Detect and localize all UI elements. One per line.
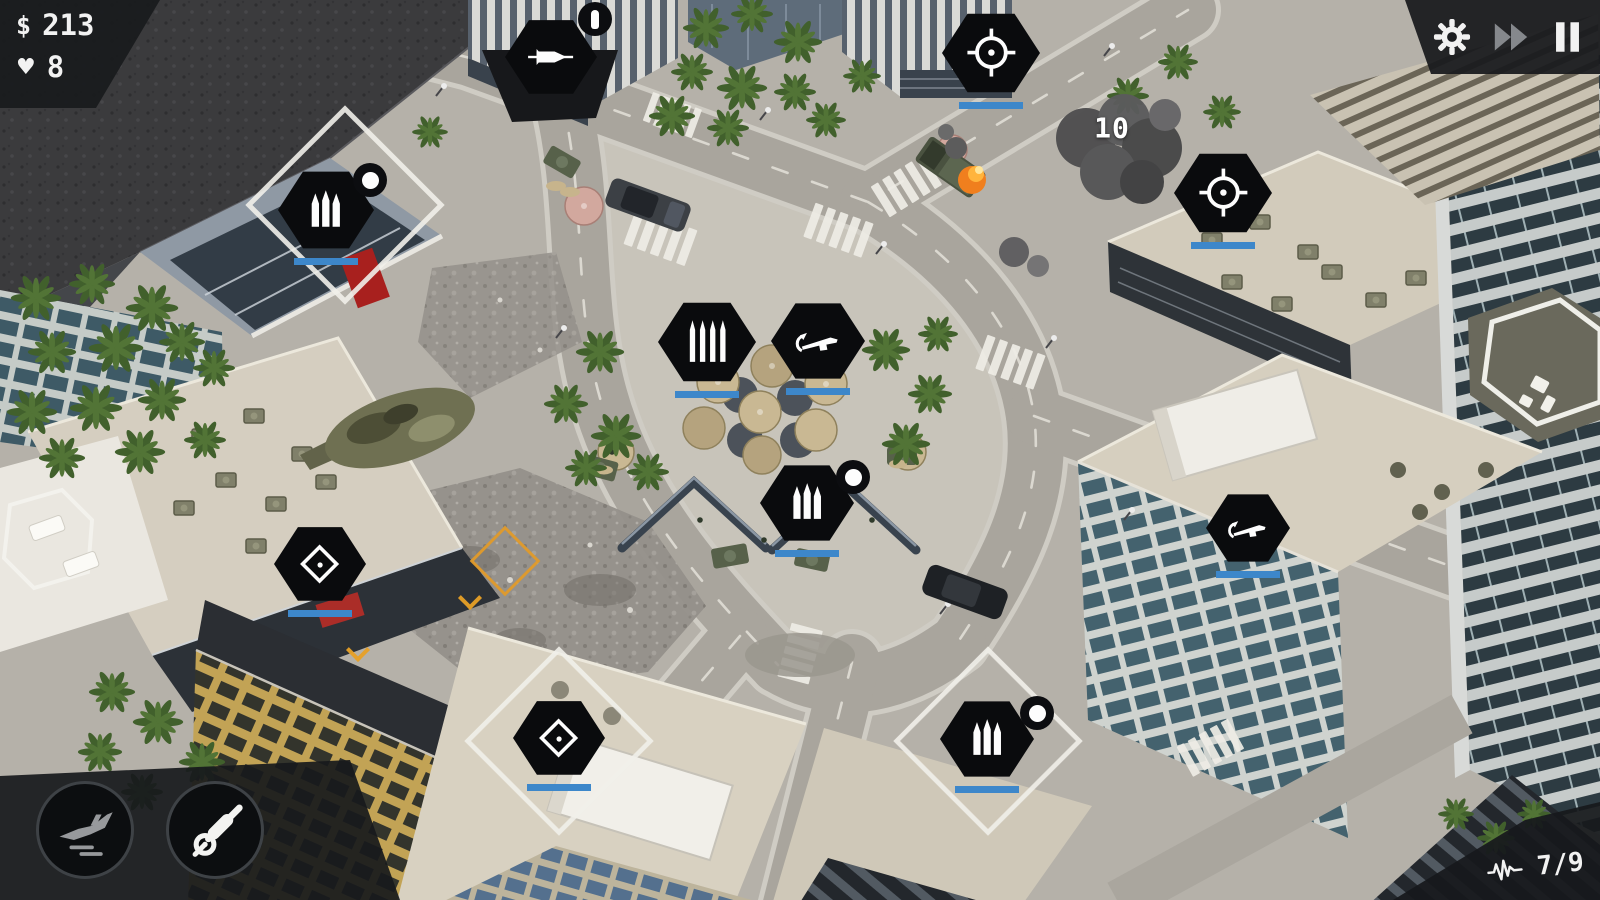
diamond-icon — [531, 714, 586, 762]
pause-icon — [1551, 19, 1584, 55]
tower-9[interactable] — [513, 698, 605, 778]
health-bar — [955, 786, 1019, 793]
upgrade-badge — [578, 2, 612, 36]
tower-hex — [513, 698, 605, 778]
abilities-panel — [0, 760, 400, 900]
tower-2[interactable] — [505, 17, 597, 97]
diamond-icon — [292, 540, 347, 588]
missile-icon — [523, 33, 578, 81]
gun-icon — [1223, 506, 1273, 550]
lives-value: 8 — [47, 50, 64, 84]
game-stage: $ 213 ♥ 8 — [0, 0, 1600, 900]
gear-icon — [1433, 18, 1471, 56]
howitzer-icon — [184, 799, 246, 861]
crosshair-icon — [962, 27, 1021, 78]
health-bar — [959, 102, 1023, 109]
crosshair-icon — [1194, 167, 1253, 218]
damage-popup: 10 — [1094, 112, 1130, 145]
airstrike-ability-button[interactable] — [36, 781, 134, 879]
upgrade-badge — [1020, 696, 1054, 730]
pulse-icon — [1486, 855, 1528, 885]
tower-7[interactable] — [760, 462, 854, 544]
currency-icon: $ — [16, 11, 31, 40]
upgrade-badge — [836, 460, 870, 494]
tower-hex — [274, 524, 366, 604]
fast-forward-button[interactable] — [1491, 19, 1531, 55]
health-bar — [527, 784, 591, 791]
health-bar — [294, 258, 358, 265]
settings-button[interactable] — [1433, 18, 1471, 56]
bullets3-icon — [297, 185, 355, 235]
tower-3[interactable] — [942, 10, 1040, 95]
health-bar — [1191, 242, 1255, 249]
tower-11[interactable] — [1206, 491, 1290, 564]
gun-icon — [790, 316, 846, 365]
tower-hex — [942, 10, 1040, 95]
health-bar — [1216, 571, 1280, 578]
tower-8[interactable] — [274, 524, 366, 604]
tower-4[interactable] — [1174, 150, 1272, 235]
tower-6[interactable] — [771, 300, 865, 382]
tower-1[interactable] — [278, 168, 374, 252]
health-bar — [775, 550, 839, 557]
bullets3-icon — [959, 714, 1015, 763]
bullets4-icon — [678, 316, 737, 367]
tower-10[interactable] — [940, 698, 1034, 780]
artillery-ability-button[interactable] — [166, 781, 264, 879]
upgrade-badge — [353, 163, 387, 197]
fast-forward-icon — [1491, 19, 1531, 55]
heart-icon: ♥ — [16, 55, 36, 80]
wave-count-text: 7/9 — [1535, 847, 1585, 882]
bullets3-icon — [779, 478, 835, 527]
tower-hex — [771, 300, 865, 382]
pause-button[interactable] — [1551, 19, 1584, 55]
tower-5[interactable] — [658, 299, 756, 384]
wave-counter: 7/9 — [1486, 847, 1586, 887]
jet-icon — [54, 799, 116, 861]
tower-hex — [1206, 491, 1290, 564]
money-value: 213 — [42, 8, 94, 42]
game-map[interactable] — [0, 0, 1600, 900]
health-bar — [675, 391, 739, 398]
health-bar — [786, 388, 850, 395]
tower-hex — [1174, 150, 1272, 235]
tower-hex — [658, 299, 756, 384]
health-bar — [288, 610, 352, 617]
